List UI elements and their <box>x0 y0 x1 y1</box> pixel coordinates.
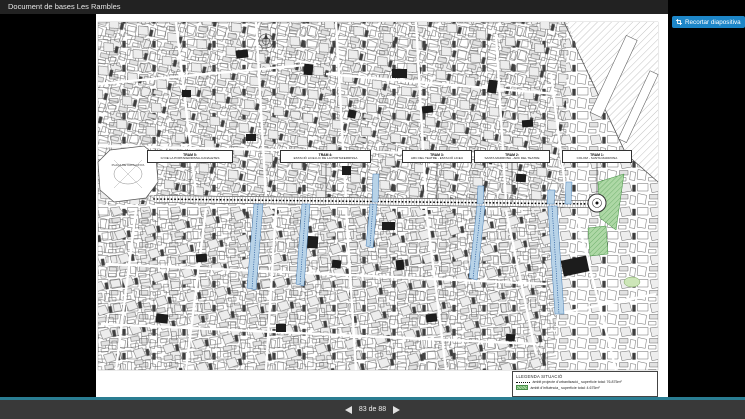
tram-label-segment: COLOM - SANTA MADRONA <box>563 157 631 161</box>
tram-label-segment: ESTACIÓ LICEU-C/ DE LA PORTAFERRISSA <box>281 157 370 161</box>
dotted-line-swatch <box>516 382 530 383</box>
tram-label-segment: C/ DE LA PORTAFERRISSA-CANALETES <box>148 157 232 161</box>
crop-slide-button[interactable]: Recortar diapositiva <box>672 16 745 28</box>
previous-slide-button[interactable] <box>345 406 352 414</box>
tram-label-segment: ARC DEL TEATRE - ESTACIÓ LICEU <box>403 157 471 161</box>
tram-label-3: TRAM 3: ARC DEL TEATRE - ESTACIÓ LICEU <box>402 150 472 163</box>
page-indicator: 83 de 88 <box>359 406 386 413</box>
map-illustration <box>96 14 668 397</box>
slide-canvas: TRAM 5: C/ DE LA PORTAFERRISSA-CANALETES… <box>96 14 668 397</box>
tram-label-1: TRAM 1: COLOM - SANTA MADRONA <box>562 150 632 163</box>
legend-item-label: àmbit projecte d'urbanització_ superfíci… <box>533 380 622 384</box>
crop-icon <box>676 19 682 25</box>
legend-item-label: àmbit d'influència_ superfície total: 4.… <box>531 386 600 390</box>
placa-catalunya-label: PLAÇA DE CATALUNYA <box>109 164 147 168</box>
viewer-stage: { "chrome": { "title": "Document de base… <box>0 0 745 419</box>
green-hatch-swatch <box>516 385 528 390</box>
crop-slide-label: Recortar diapositiva <box>685 19 741 26</box>
right-gutter <box>668 0 745 397</box>
legend-item: àmbit projecte d'urbanització_ superfíci… <box>516 380 654 384</box>
park-oval <box>624 277 640 287</box>
tram-label-2: TRAM 2: SANTA MADRONA - ARC DEL TEATRE <box>474 150 550 163</box>
colom-roundabout <box>588 194 606 212</box>
legend-title: LLEGENDA SITUACIÓ <box>516 374 654 379</box>
map-legend: LLEGENDA SITUACIÓ àmbit projecte d'urban… <box>512 371 658 397</box>
tram-label-5: TRAM 5: C/ DE LA PORTAFERRISSA-CANALETES <box>147 150 233 163</box>
window-title: Document de bases Les Rambles <box>0 0 668 14</box>
tram-label-segment: SANTA MADRONA - ARC DEL TEATRE <box>475 157 549 161</box>
next-slide-button[interactable] <box>393 406 400 414</box>
tram-label-4: TRAM 4: ESTACIÓ LICEU-C/ DE LA PORTAFERR… <box>280 150 371 163</box>
legend-item: àmbit d'influència_ superfície total: 4.… <box>516 385 654 390</box>
pager-bar: 83 de 88 <box>0 400 745 419</box>
